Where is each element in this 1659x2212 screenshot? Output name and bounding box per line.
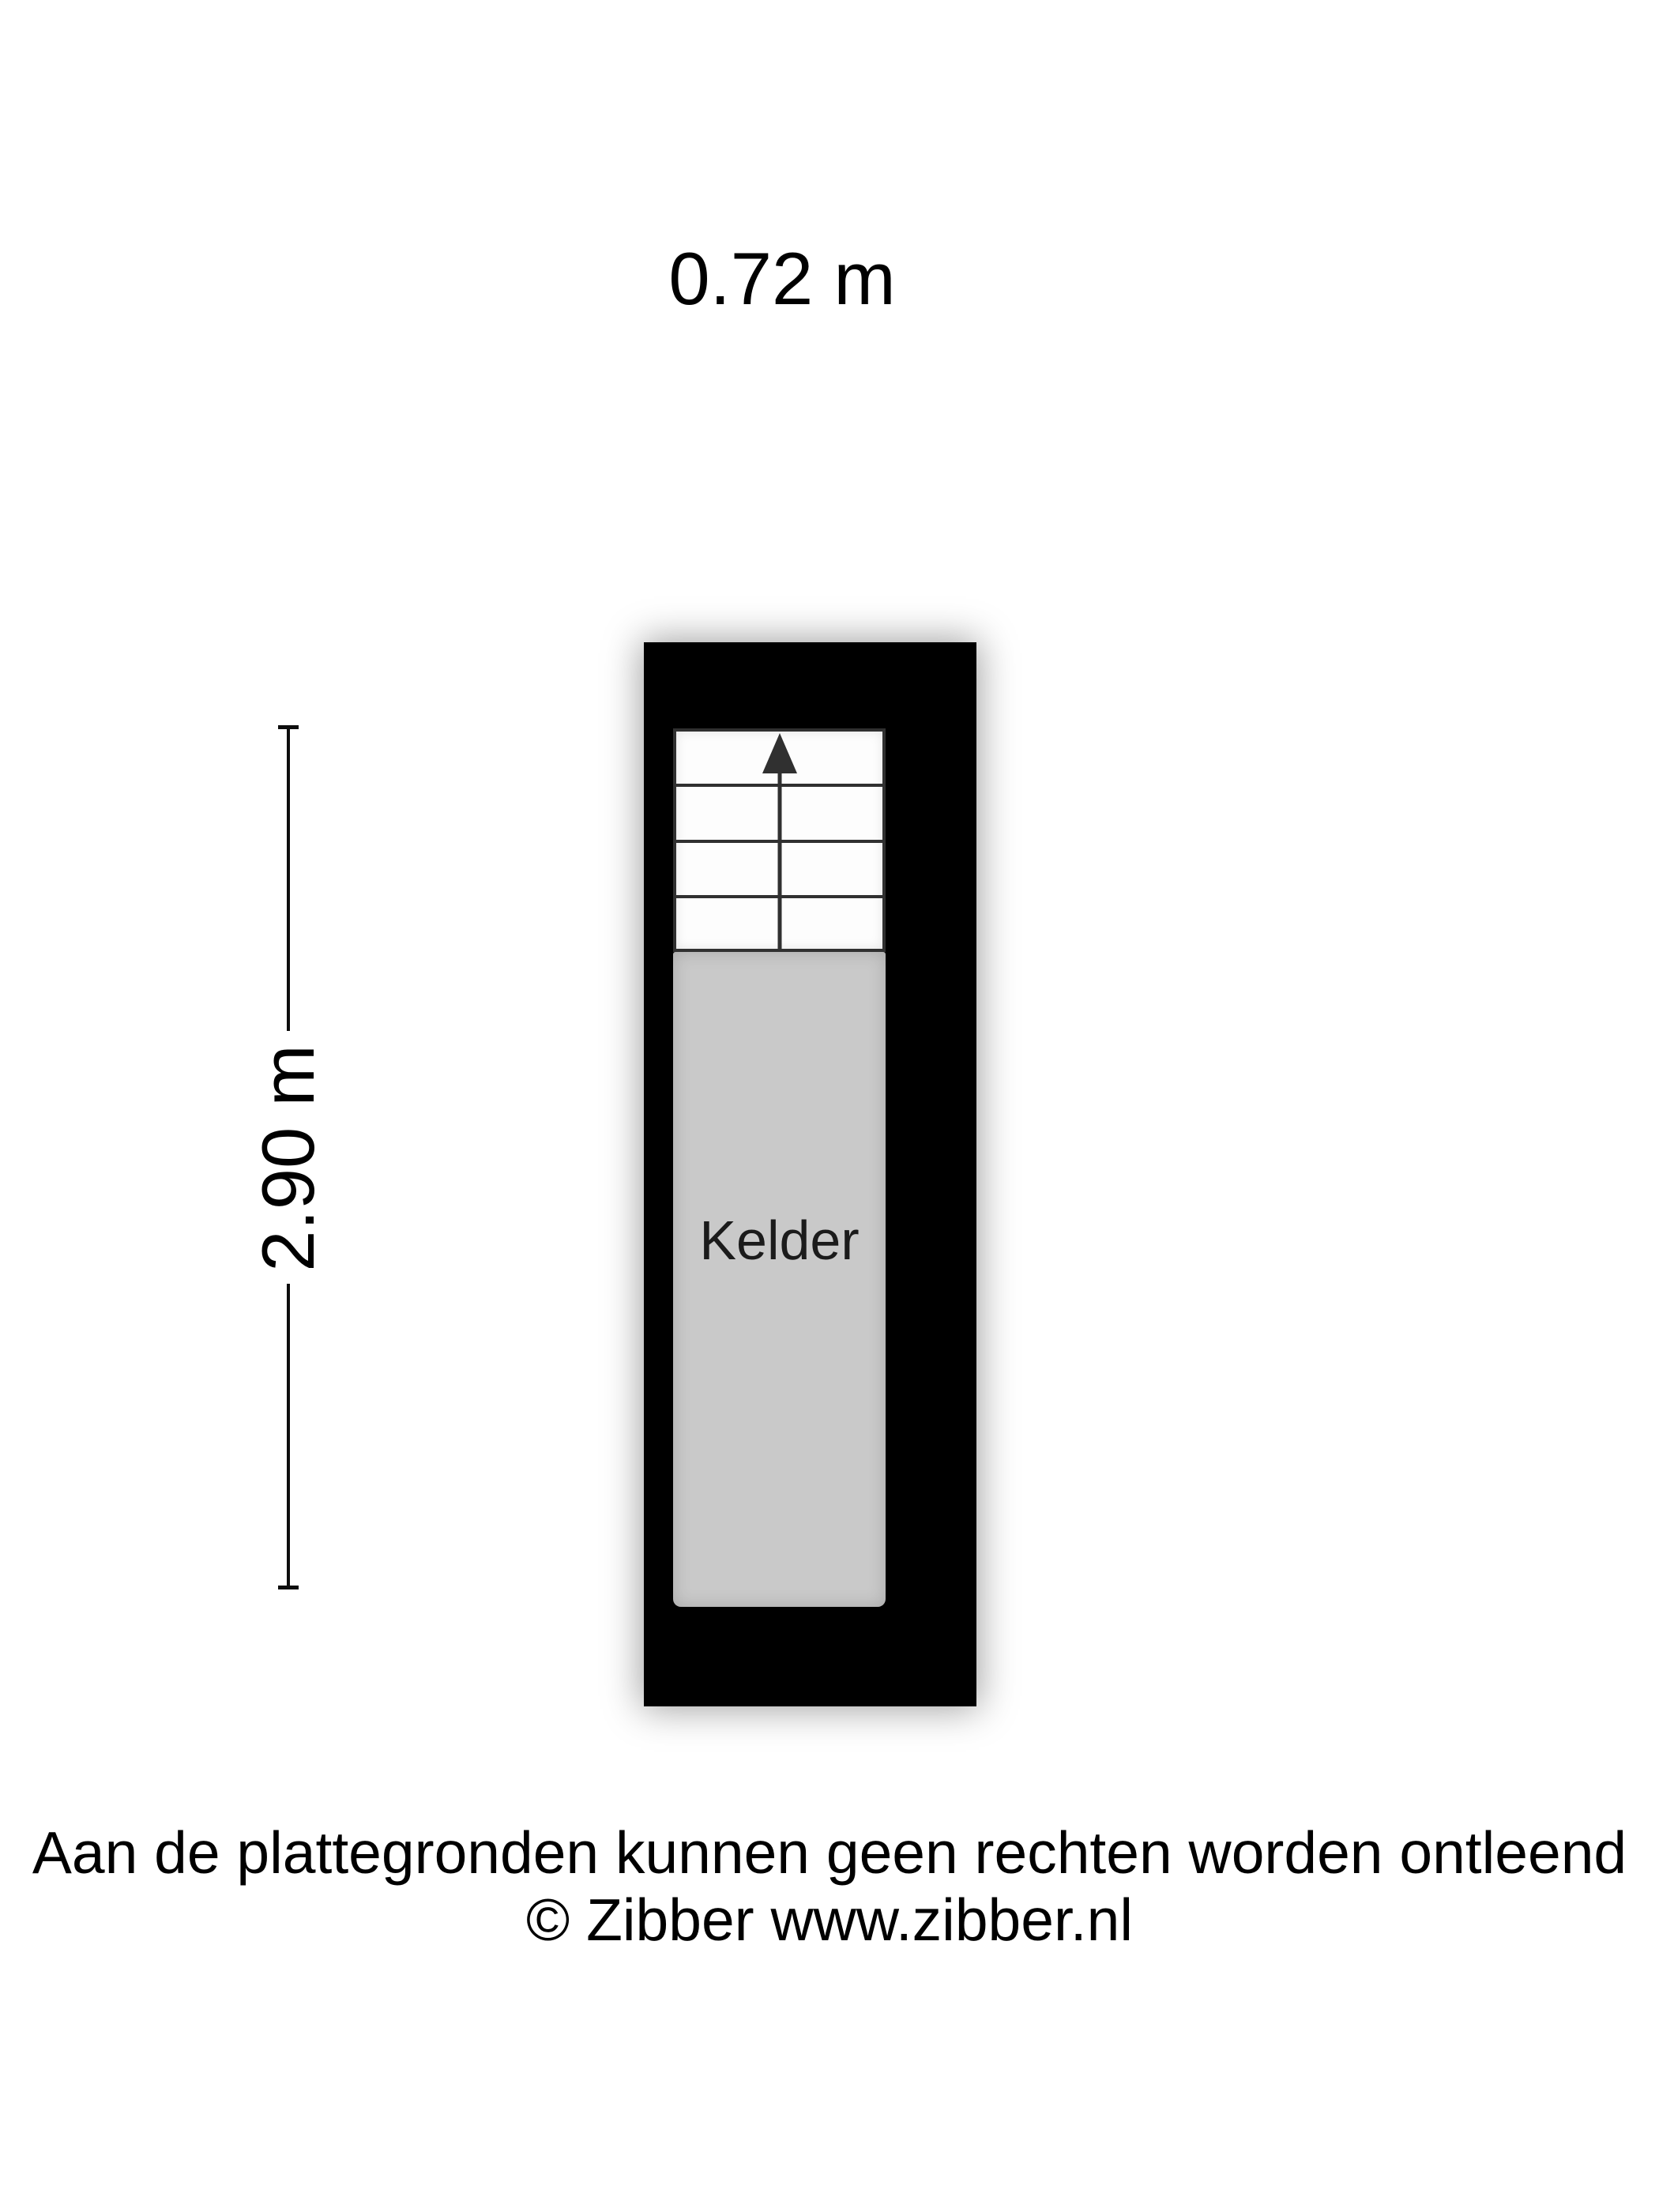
dimension-line-upper — [287, 728, 290, 1031]
room-label: Kelder — [673, 1213, 886, 1268]
dimension-cap-bottom — [278, 1586, 299, 1589]
height-dimension: 2.90 m — [278, 725, 299, 1589]
staircase — [673, 728, 886, 952]
dimension-line-lower — [287, 1284, 290, 1586]
floorplan-outline: Kelder — [644, 642, 976, 1706]
up-arrow-icon — [762, 733, 797, 773]
disclaimer-line1: Aan de plattegronden kunnen geen rechten… — [0, 1819, 1659, 1887]
floorplan-canvas: 0.72 m 2.90 m Kelder Aan de plattegronde… — [0, 0, 1659, 2212]
disclaimer: Aan de plattegronden kunnen geen rechten… — [0, 1819, 1659, 1954]
disclaimer-line2: © Zibber www.zibber.nl — [0, 1887, 1659, 1954]
stair-center-line — [777, 773, 781, 949]
room-kelder: Kelder — [673, 952, 886, 1607]
height-dimension-label: 2.90 m — [251, 1044, 325, 1271]
width-dimension-label: 0.72 m — [668, 242, 895, 316]
